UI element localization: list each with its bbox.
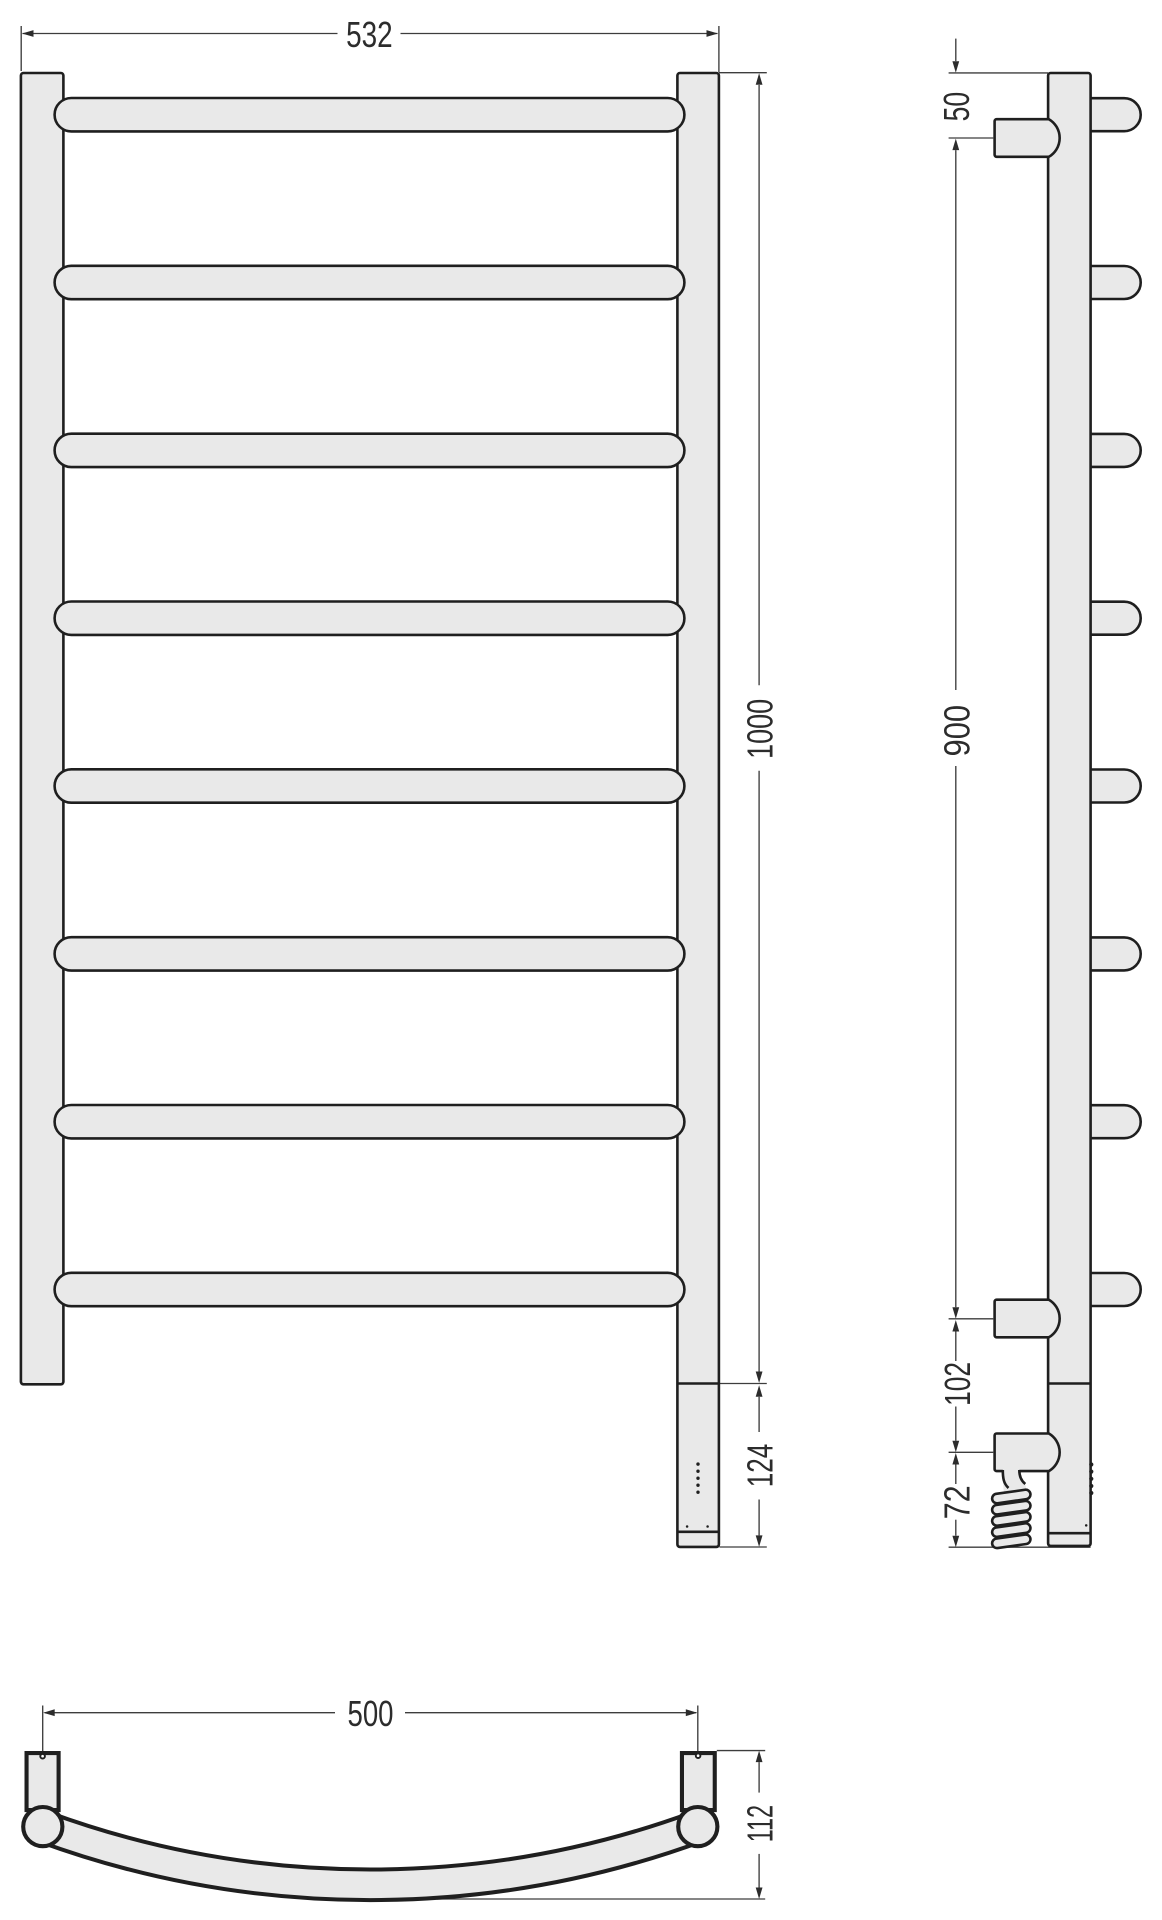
- svg-text:1000: 1000: [740, 699, 781, 759]
- svg-text:50: 50: [936, 92, 977, 122]
- svg-text:500: 500: [348, 1693, 394, 1734]
- svg-text:112: 112: [740, 1805, 781, 1842]
- svg-text:72: 72: [937, 1485, 978, 1519]
- svg-text:124: 124: [739, 1444, 780, 1488]
- svg-text:532: 532: [346, 14, 393, 55]
- svg-text:900: 900: [936, 705, 977, 757]
- svg-text:102: 102: [937, 1362, 978, 1406]
